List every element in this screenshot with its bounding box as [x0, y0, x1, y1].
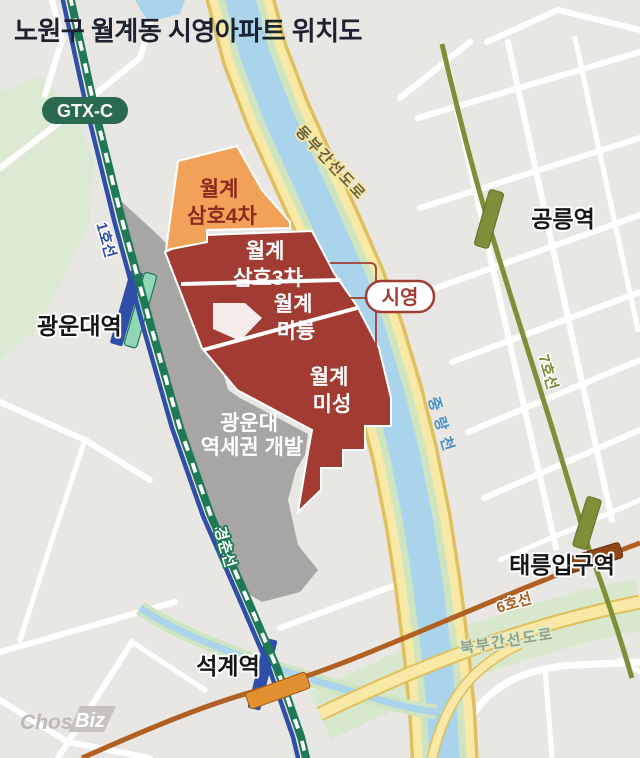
page-title: 노원구 월계동 시영아파트 위치도 [14, 16, 363, 46]
gongneung-station-label: 공릉역 [531, 206, 594, 232]
taereung-station-label: 태릉입구역 [509, 552, 615, 578]
seokgye-station-label: 석계역 [196, 653, 259, 679]
gtx-c-badge: GTX-C [42, 97, 128, 124]
siyoung-label: 시영 [382, 286, 419, 309]
map-figure: GTX-C 1호선 경춘선 7호선 6호선 동부간선도로 북부간선도로 중랑천 … [0, 0, 640, 758]
chosunbiz-logo: Chosun Biz [20, 706, 116, 734]
gwangwoondae-station-label: 광운대역 [37, 313, 122, 339]
gtx-c-label: GTX-C [57, 101, 113, 121]
logo-biz: Biz [75, 710, 105, 732]
map-canvas: GTX-C 1호선 경춘선 7호선 6호선 동부간선도로 북부간선도로 중랑천 … [0, 0, 640, 758]
